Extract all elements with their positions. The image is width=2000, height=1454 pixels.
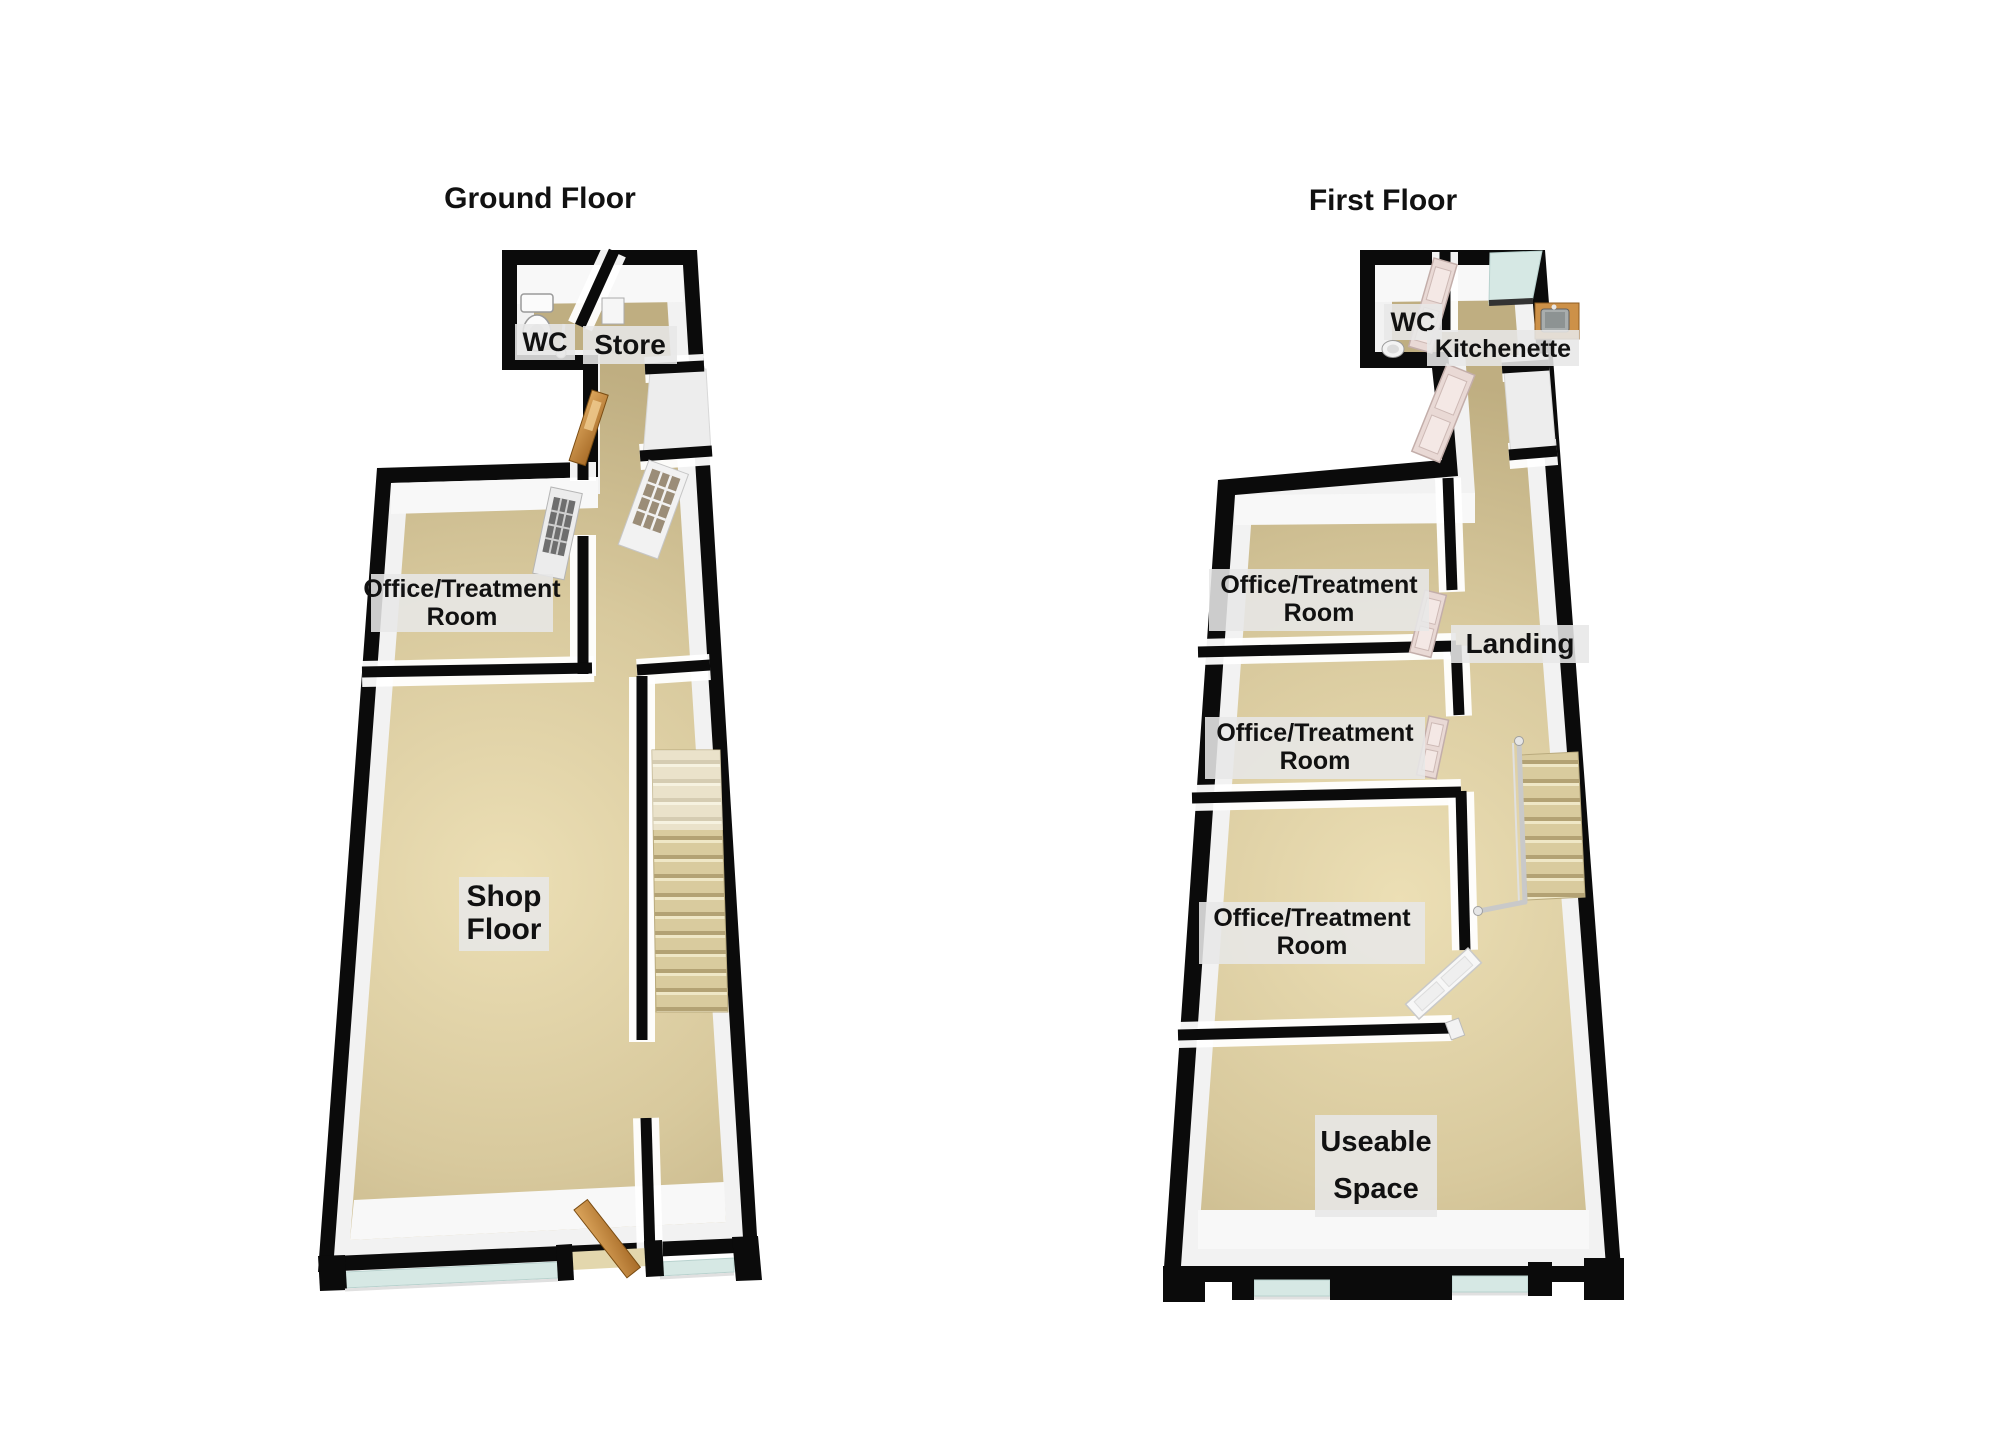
first-floor-title: First Floor — [1309, 184, 1458, 217]
room-label-office1-line2: Room — [1284, 599, 1355, 627]
room-label-useable-line2: Space — [1333, 1173, 1418, 1205]
store-side-wall-mass — [643, 369, 711, 456]
room-label-wc: WC — [523, 327, 568, 357]
ground-floor-plan: Ground Floor — [318, 182, 762, 1291]
room-label-office1-line1: Office/Treatment — [1220, 571, 1418, 599]
room-label-office3-line1: Office/Treatment — [1213, 904, 1411, 932]
room-label-kitchenette: Kitchenette — [1435, 335, 1571, 363]
room-label-office2-line2: Room — [1280, 747, 1351, 775]
room-label-shop-line1: Shop — [467, 880, 542, 913]
room-label-shop-line2: Floor — [467, 913, 542, 946]
wc-sink-icon — [1382, 341, 1404, 358]
room-label-office3-line2: Room — [1277, 932, 1348, 960]
room-label-office-ground-line1: Office/Treatment — [363, 575, 561, 603]
room-label-office-ground-line2: Room — [427, 603, 498, 631]
rear-window-right — [1452, 1276, 1528, 1292]
ground-staircase — [652, 750, 728, 1012]
room-label-store: Store — [594, 329, 666, 360]
ground-floor-title: Ground Floor — [444, 182, 636, 215]
store-cabinet-icon — [602, 298, 624, 324]
first-floor-plan: First Floor — [1163, 184, 1624, 1302]
room-label-useable-line1: Useable — [1320, 1126, 1431, 1158]
floorplan-image: Ground Floor — [0, 0, 2000, 1454]
room-label-office2-line1: Office/Treatment — [1216, 719, 1414, 747]
landing-side-wall-mass — [1504, 369, 1556, 456]
rear-window-left — [1254, 1280, 1330, 1296]
room-label-landing: Landing — [1466, 628, 1575, 659]
